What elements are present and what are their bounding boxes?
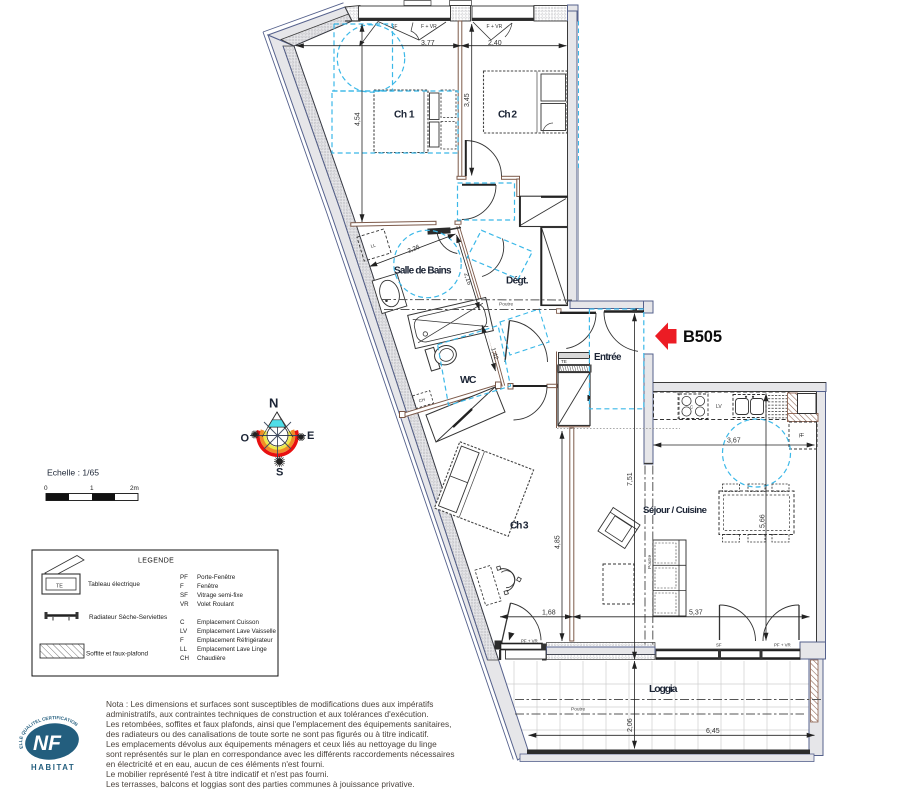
svg-text:Ch 3: Ch 3: [510, 521, 529, 532]
svg-text:NF: NF: [33, 732, 62, 755]
svg-text:F: F: [180, 583, 184, 590]
svg-text:Emplacement Lave Vaisselle: Emplacement Lave Vaisselle: [197, 628, 277, 635]
svg-text:Ch 1: Ch 1: [394, 110, 415, 121]
svg-text:3,67: 3,67: [727, 438, 741, 445]
svg-text:en électricité et en eau, aucu: en électricité et en eau, aucun de ces é…: [106, 759, 324, 769]
svg-text:Poutre: Poutre: [647, 555, 653, 569]
svg-text:HABITAT: HABITAT: [31, 763, 75, 772]
svg-text:des radiateurs ou des canalisa: des radiateurs ou des canalisations de t…: [106, 729, 429, 739]
svg-text:Salle de Bains: Salle de Bains: [394, 266, 452, 277]
svg-text:F: F: [180, 637, 184, 644]
svg-text:Emplacement Lave Linge: Emplacement Lave Linge: [197, 646, 267, 653]
svg-text:Porte-Fenêtre: Porte-Fenêtre: [197, 574, 236, 581]
svg-text:F + VR: F + VR: [421, 24, 437, 30]
svg-text:Echelle : 1/65: Echelle : 1/65: [47, 468, 99, 478]
svg-text:CH: CH: [180, 655, 189, 662]
svg-text:C: C: [180, 619, 185, 626]
svg-text:Le mobilier représenté l'est à: Le mobilier représenté l'est à titre ind…: [106, 769, 329, 779]
svg-text:Chaudière: Chaudière: [197, 655, 226, 662]
svg-text:Volet Roulant: Volet Roulant: [197, 601, 234, 608]
svg-text:3,77: 3,77: [421, 40, 435, 47]
svg-text:Tableau électrique: Tableau électrique: [88, 581, 140, 588]
svg-text:O: O: [241, 433, 250, 445]
svg-text:Nota : Les dimensions et surfa: Nota : Les dimensions et surfaces sont s…: [106, 699, 433, 709]
svg-text:PF: PF: [180, 574, 188, 581]
svg-text:C: C: [690, 405, 693, 410]
svg-text:VR: VR: [180, 601, 189, 608]
svg-text:Poutre: Poutre: [571, 707, 585, 713]
svg-text:5,66: 5,66: [759, 514, 766, 528]
svg-text:Fenêtre: Fenêtre: [197, 583, 219, 590]
svg-text:E: E: [307, 430, 314, 442]
svg-text:LV: LV: [180, 628, 188, 635]
svg-text:4,85: 4,85: [555, 535, 562, 549]
svg-text:SF: SF: [180, 592, 188, 599]
svg-text:Radiateur Sèche-Serviettes: Radiateur Sèche-Serviettes: [89, 614, 167, 621]
svg-text:F: F: [801, 433, 804, 439]
svg-text:PF + VR: PF + VR: [774, 643, 791, 648]
svg-text:Les emplacements dévolus aux é: Les emplacements dévolus aux équipements…: [106, 739, 437, 749]
svg-text:PF + VR: PF + VR: [521, 639, 538, 644]
svg-text:B505: B505: [683, 328, 722, 346]
svg-text:Dégt.: Dégt.: [506, 276, 529, 287]
svg-text:4,54: 4,54: [355, 112, 362, 126]
svg-text:Emplacement Réfrigérateur: Emplacement Réfrigérateur: [197, 637, 273, 644]
svg-text:1: 1: [90, 485, 94, 492]
svg-text:7,51: 7,51: [627, 472, 634, 486]
svg-text:Emplacement Cuisson: Emplacement Cuisson: [197, 619, 259, 626]
svg-text:N: N: [269, 396, 278, 411]
svg-text:TE: TE: [56, 584, 63, 590]
svg-text:Loggia: Loggia: [649, 683, 678, 695]
svg-text:2m: 2m: [130, 485, 139, 492]
svg-text:Entrée: Entrée: [594, 352, 622, 363]
svg-text:Vitrage semi-fixe: Vitrage semi-fixe: [197, 592, 244, 599]
svg-text:SF: SF: [716, 643, 722, 648]
svg-text:6,45: 6,45: [706, 728, 720, 735]
svg-text:1,68: 1,68: [542, 609, 556, 616]
svg-text:TE: TE: [561, 359, 567, 364]
svg-text:Soffite et faux-plafond: Soffite et faux-plafond: [86, 651, 149, 658]
svg-text:Les terrasses, balcons et logg: Les terrasses, balcons et loggias sont d…: [106, 779, 415, 789]
svg-text:Séjour / Cuisine: Séjour / Cuisine: [643, 505, 707, 516]
svg-text:S: S: [276, 467, 283, 479]
svg-text:LEGENDE: LEGENDE: [138, 558, 174, 565]
svg-text:2,40: 2,40: [488, 40, 502, 47]
svg-text:administratifs, aux contrainte: administratifs, aux contraintes techniqu…: [106, 709, 429, 719]
svg-text:2,06: 2,06: [627, 718, 634, 732]
svg-text:5,37: 5,37: [689, 609, 703, 616]
svg-text:LL: LL: [180, 646, 187, 653]
svg-text:F + VR: F + VR: [487, 24, 503, 30]
svg-text:0: 0: [44, 485, 48, 492]
svg-text:WC: WC: [460, 374, 477, 386]
svg-text:Poutre: Poutre: [499, 302, 513, 308]
svg-text:LV: LV: [716, 404, 722, 410]
svg-text:Les retombées, soffites et fau: Les retombées, soffites et faux plafonds…: [106, 719, 452, 729]
svg-text:sont représentés sur le plan e: sont représentés sur le plan en correspo…: [106, 749, 455, 759]
svg-text:Ch 2: Ch 2: [498, 110, 517, 121]
svg-text:3,45: 3,45: [464, 93, 471, 107]
